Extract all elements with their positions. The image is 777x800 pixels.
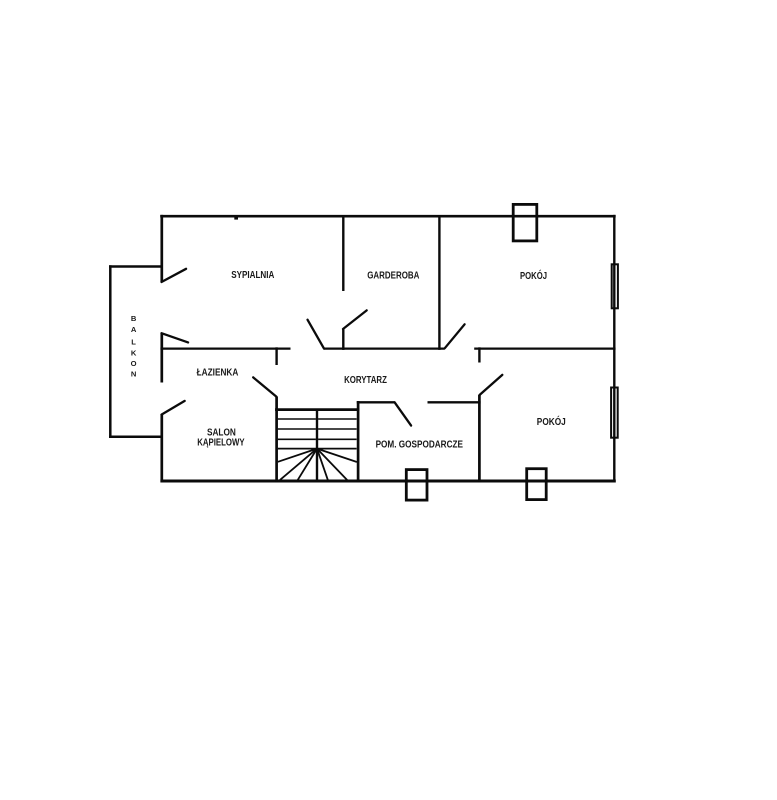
- svg-text:ŁAZIENKA: ŁAZIENKA: [197, 368, 239, 379]
- svg-text:POKÓJ: POKÓJ: [537, 416, 566, 428]
- svg-text:A: A: [131, 325, 137, 334]
- svg-text:POKÓJ: POKÓJ: [520, 270, 547, 282]
- svg-text:L: L: [131, 337, 136, 346]
- svg-text:KĄPIELOWY: KĄPIELOWY: [197, 438, 245, 449]
- svg-text:N: N: [131, 370, 136, 379]
- svg-text:POM. GOSPODARCZE: POM. GOSPODARCZE: [376, 440, 464, 451]
- svg-text:SYPIALNIA: SYPIALNIA: [231, 270, 274, 281]
- svg-text:K: K: [131, 348, 137, 357]
- svg-text:B: B: [131, 314, 137, 323]
- svg-text:GARDEROBA: GARDEROBA: [367, 271, 419, 282]
- svg-text:O: O: [131, 359, 137, 368]
- svg-text:KORYTARZ: KORYTARZ: [344, 375, 387, 386]
